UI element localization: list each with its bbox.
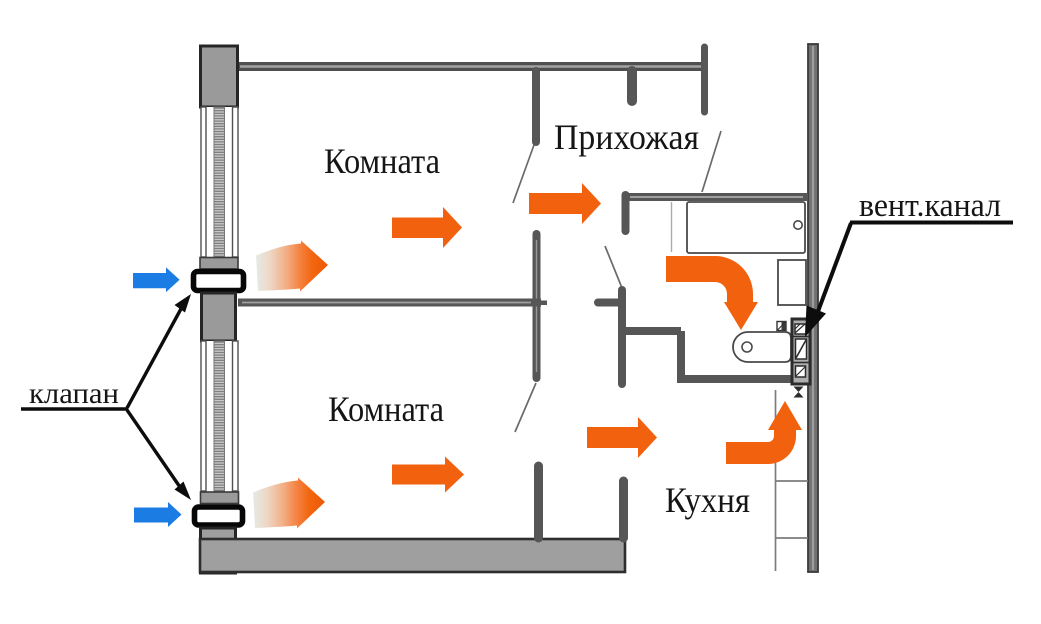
svg-text:Прихожая: Прихожая — [554, 117, 699, 157]
svg-text:Кухня: Кухня — [665, 480, 750, 520]
svg-text:клапан: клапан — [29, 378, 119, 410]
svg-text:Комната: Комната — [328, 389, 444, 429]
svg-text:Комната: Комната — [324, 141, 440, 181]
svg-text:вент.канал: вент.канал — [859, 188, 1001, 224]
